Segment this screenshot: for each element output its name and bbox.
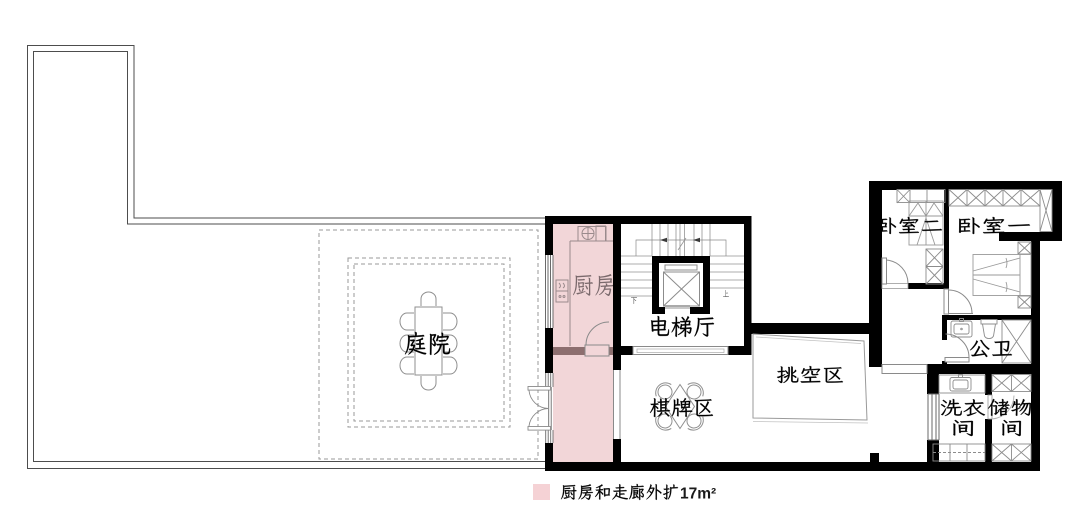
- svg-text:17m²: 17m²: [680, 486, 716, 503]
